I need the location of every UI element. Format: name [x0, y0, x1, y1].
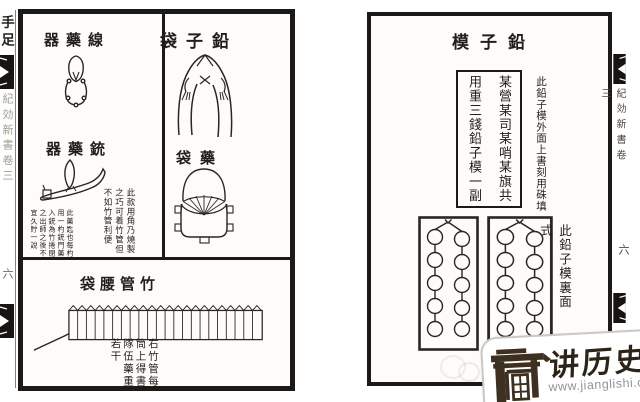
powder-spoon-annotation: 此藥匙也每杓用一杓銃門藥入銃為竹捲閉之出師之後不宜久貯一說	[28, 209, 74, 258]
lead-shot-bag-title: 鉛子袋	[160, 27, 238, 52]
fuse-powder-container-title: 線藥器	[44, 29, 110, 50]
left-margin-label: 手足	[0, 15, 16, 53]
left-margin-book-title: 紀効新書卷三	[1, 93, 15, 185]
right-margin-book-title: 紀効新書卷三	[613, 88, 627, 180]
lead-shot-bag-illustration	[169, 51, 241, 139]
lead-shot-mold-title: 鉛子模	[452, 28, 536, 53]
gate-logo-icon	[490, 344, 553, 402]
fishtail-mark-icon	[0, 55, 14, 89]
mold-inner-face-note: 此鉛子模裏面式	[556, 224, 574, 322]
bamboo-tube-annotation: 右竹管每筒上得書隊伍藥重若干	[106, 338, 158, 388]
gun-powder-container-title: 銃藥器	[46, 138, 112, 159]
left-margin-rule	[15, 10, 16, 388]
horn-annotation: 此款用角乃燒製之巧可着竹管但不如竹管利便	[100, 188, 136, 255]
scanned-book-spread: 鉛子袋 線藥器 藥袋 銃藥器 竹管腰袋	[0, 0, 640, 402]
powder-bag-illustration	[173, 164, 235, 248]
fishtail-mark-icon	[612, 293, 627, 323]
mold-inner-face-diagram	[418, 216, 479, 351]
fishtail-mark-icon	[612, 54, 627, 84]
watermark-badge: 讲历史 www.jianglishi.cn	[480, 328, 640, 402]
scan-smudge	[458, 362, 480, 382]
right-page-number: 六	[618, 244, 631, 260]
gun-powder-container-illustration	[33, 158, 107, 216]
mold-inscription-text: 某營某司某哨某旗共用重三錢鉛子模一副	[459, 75, 519, 203]
bamboo-tube-waist-bag-title: 竹管腰袋	[80, 273, 160, 294]
fishtail-mark-icon	[0, 303, 14, 339]
left-page-number: 六	[2, 268, 15, 284]
mold-outer-face-note: 此鉛子模外面上書刻用硃填	[530, 76, 548, 212]
fuse-powder-container-illustration	[60, 54, 92, 112]
